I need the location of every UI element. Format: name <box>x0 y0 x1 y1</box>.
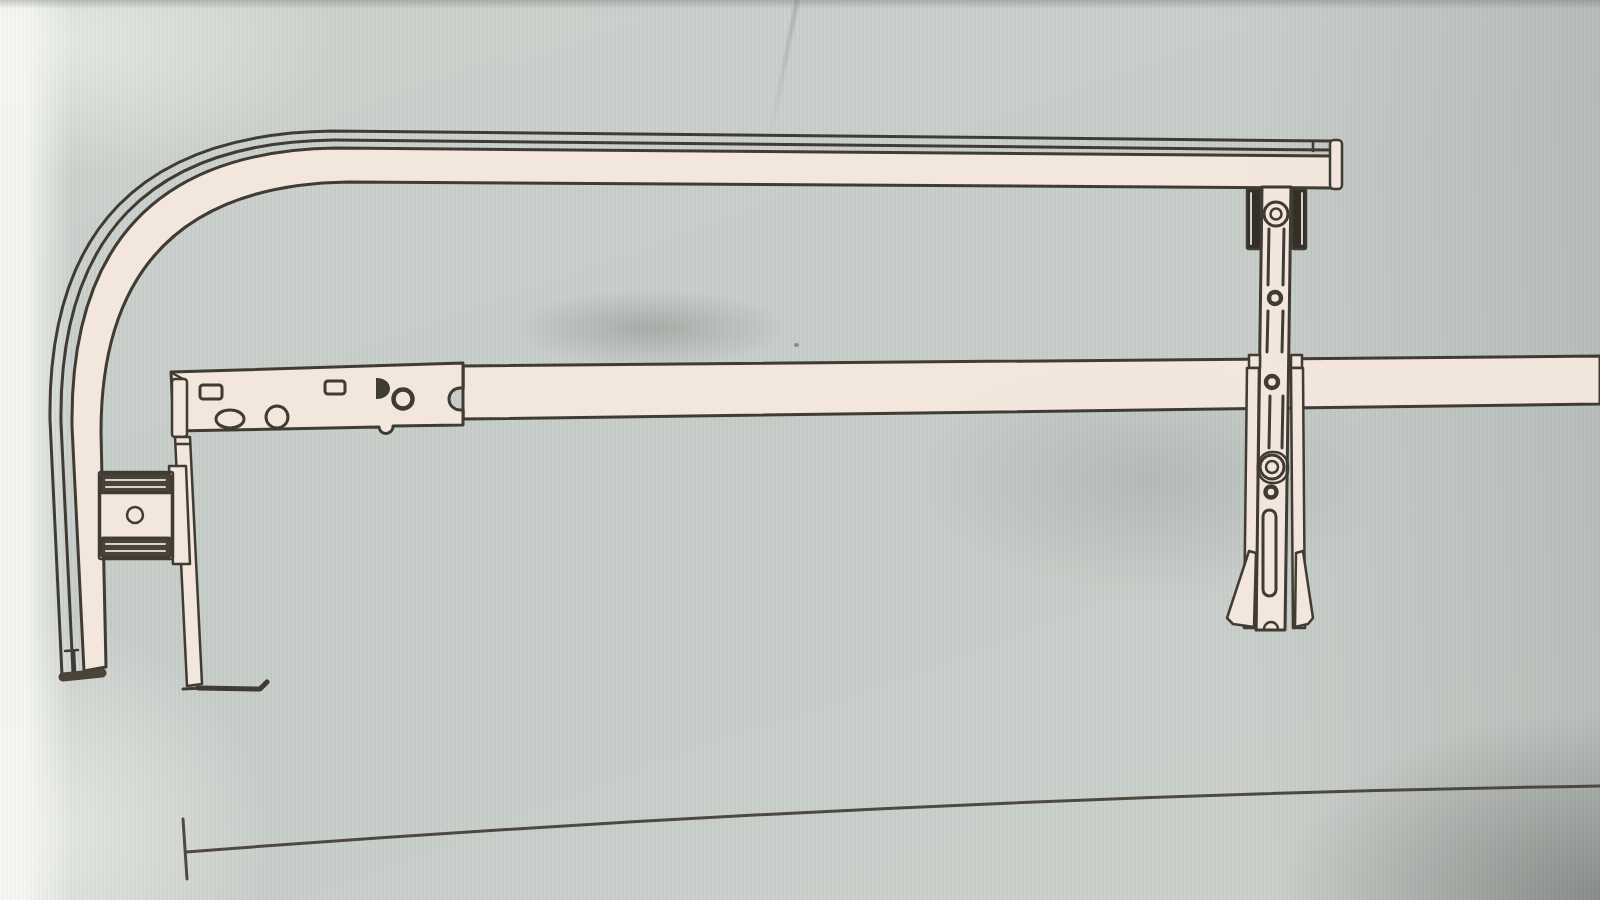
rail-bottom-cap <box>63 673 102 677</box>
plate-end-tab <box>172 379 187 437</box>
foot-fin-left <box>1227 551 1256 627</box>
foot-fin-right <box>1295 551 1313 627</box>
photographed-diagram-page: Rail assembly diagram: curved track rail… <box>0 0 1600 900</box>
leg-foot-line <box>198 682 267 689</box>
dimension-tick <box>183 819 187 879</box>
clamp-bottom-jaw <box>101 538 171 557</box>
rail-end-cap <box>1330 140 1342 189</box>
rail-bottom-seam <box>65 650 78 651</box>
collar-tab-right <box>1291 355 1302 368</box>
support-bar <box>463 356 1600 419</box>
rail-bottom-tick <box>74 651 75 671</box>
clamp-block-left <box>1247 189 1261 249</box>
bracket-strip <box>1256 187 1291 630</box>
clamp-body <box>100 493 172 538</box>
paper-speck <box>794 343 799 347</box>
assembly-diagram: Rail assembly diagram: curved track rail… <box>0 0 1600 900</box>
support-bar-assembly <box>171 356 1600 689</box>
dimension-line-group <box>183 786 1600 879</box>
rail-clamp <box>99 466 190 564</box>
collar-tab-left <box>1249 355 1260 368</box>
dimension-line <box>186 786 1600 852</box>
clamp-block-right <box>1292 189 1306 249</box>
clamp-top-jaw <box>101 474 171 493</box>
